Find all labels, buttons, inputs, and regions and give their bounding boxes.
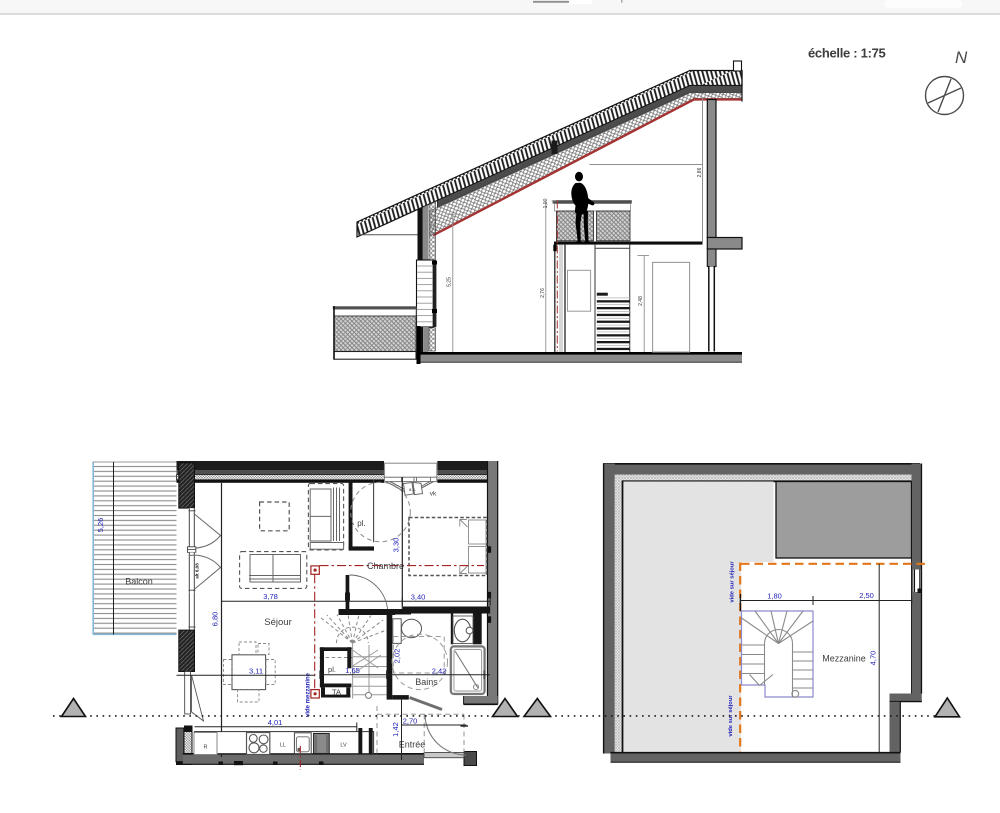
svg-text:alt 6,08: alt 6,08 [195,563,200,579]
svg-text:vk: vk [430,491,437,498]
svg-text:échelle : 1:75: échelle : 1:75 [808,46,886,61]
svg-text:6,80: 6,80 [211,612,220,627]
svg-text:LL: LL [280,743,286,749]
svg-text:pl.: pl. [328,665,336,674]
svg-text:LV: LV [340,743,347,749]
svg-text:N: N [955,48,968,67]
svg-text:Chambre: Chambre [367,561,404,571]
svg-text:Entrée: Entrée [399,740,426,750]
svg-text:4,01: 4,01 [268,718,283,727]
svg-text:1,42: 1,42 [391,722,400,737]
svg-text:pl.: pl. [357,519,365,528]
svg-text:R: R [204,745,208,751]
svg-text:3,30: 3,30 [392,538,401,553]
svg-text:a.s.: a.s. [409,487,416,492]
svg-text:Séjour: Séjour [264,617,291,628]
svg-text:2,70: 2,70 [403,717,418,726]
svg-text:2,50: 2,50 [859,591,874,600]
svg-text:3,40: 3,40 [411,593,426,602]
svg-text:vide mezzanine: vide mezzanine [306,672,312,717]
svg-text:3,11: 3,11 [249,667,263,676]
svg-text:4,70: 4,70 [869,651,878,666]
svg-text:2,02: 2,02 [393,649,402,664]
svg-text:Mezzanine: Mezzanine [822,654,866,664]
svg-text:Balcon: Balcon [125,577,153,587]
svg-text:1,65: 1,65 [345,666,360,675]
svg-text:2,48: 2,48 [638,296,644,306]
svg-text:1,80: 1,80 [767,592,782,601]
svg-text:TA: TA [332,688,341,697]
svg-text:1,00: 1,00 [543,198,549,208]
svg-text:2,42: 2,42 [432,667,447,676]
svg-text:2,86: 2,86 [697,167,703,177]
svg-text:vide sur séjour: vide sur séjour [730,561,736,603]
svg-text:Bains: Bains [415,677,438,687]
svg-text:5,25: 5,25 [447,277,453,287]
svg-text:2,76: 2,76 [540,288,546,298]
svg-text:3,78: 3,78 [263,592,278,601]
svg-text:5,26: 5,26 [96,518,105,533]
